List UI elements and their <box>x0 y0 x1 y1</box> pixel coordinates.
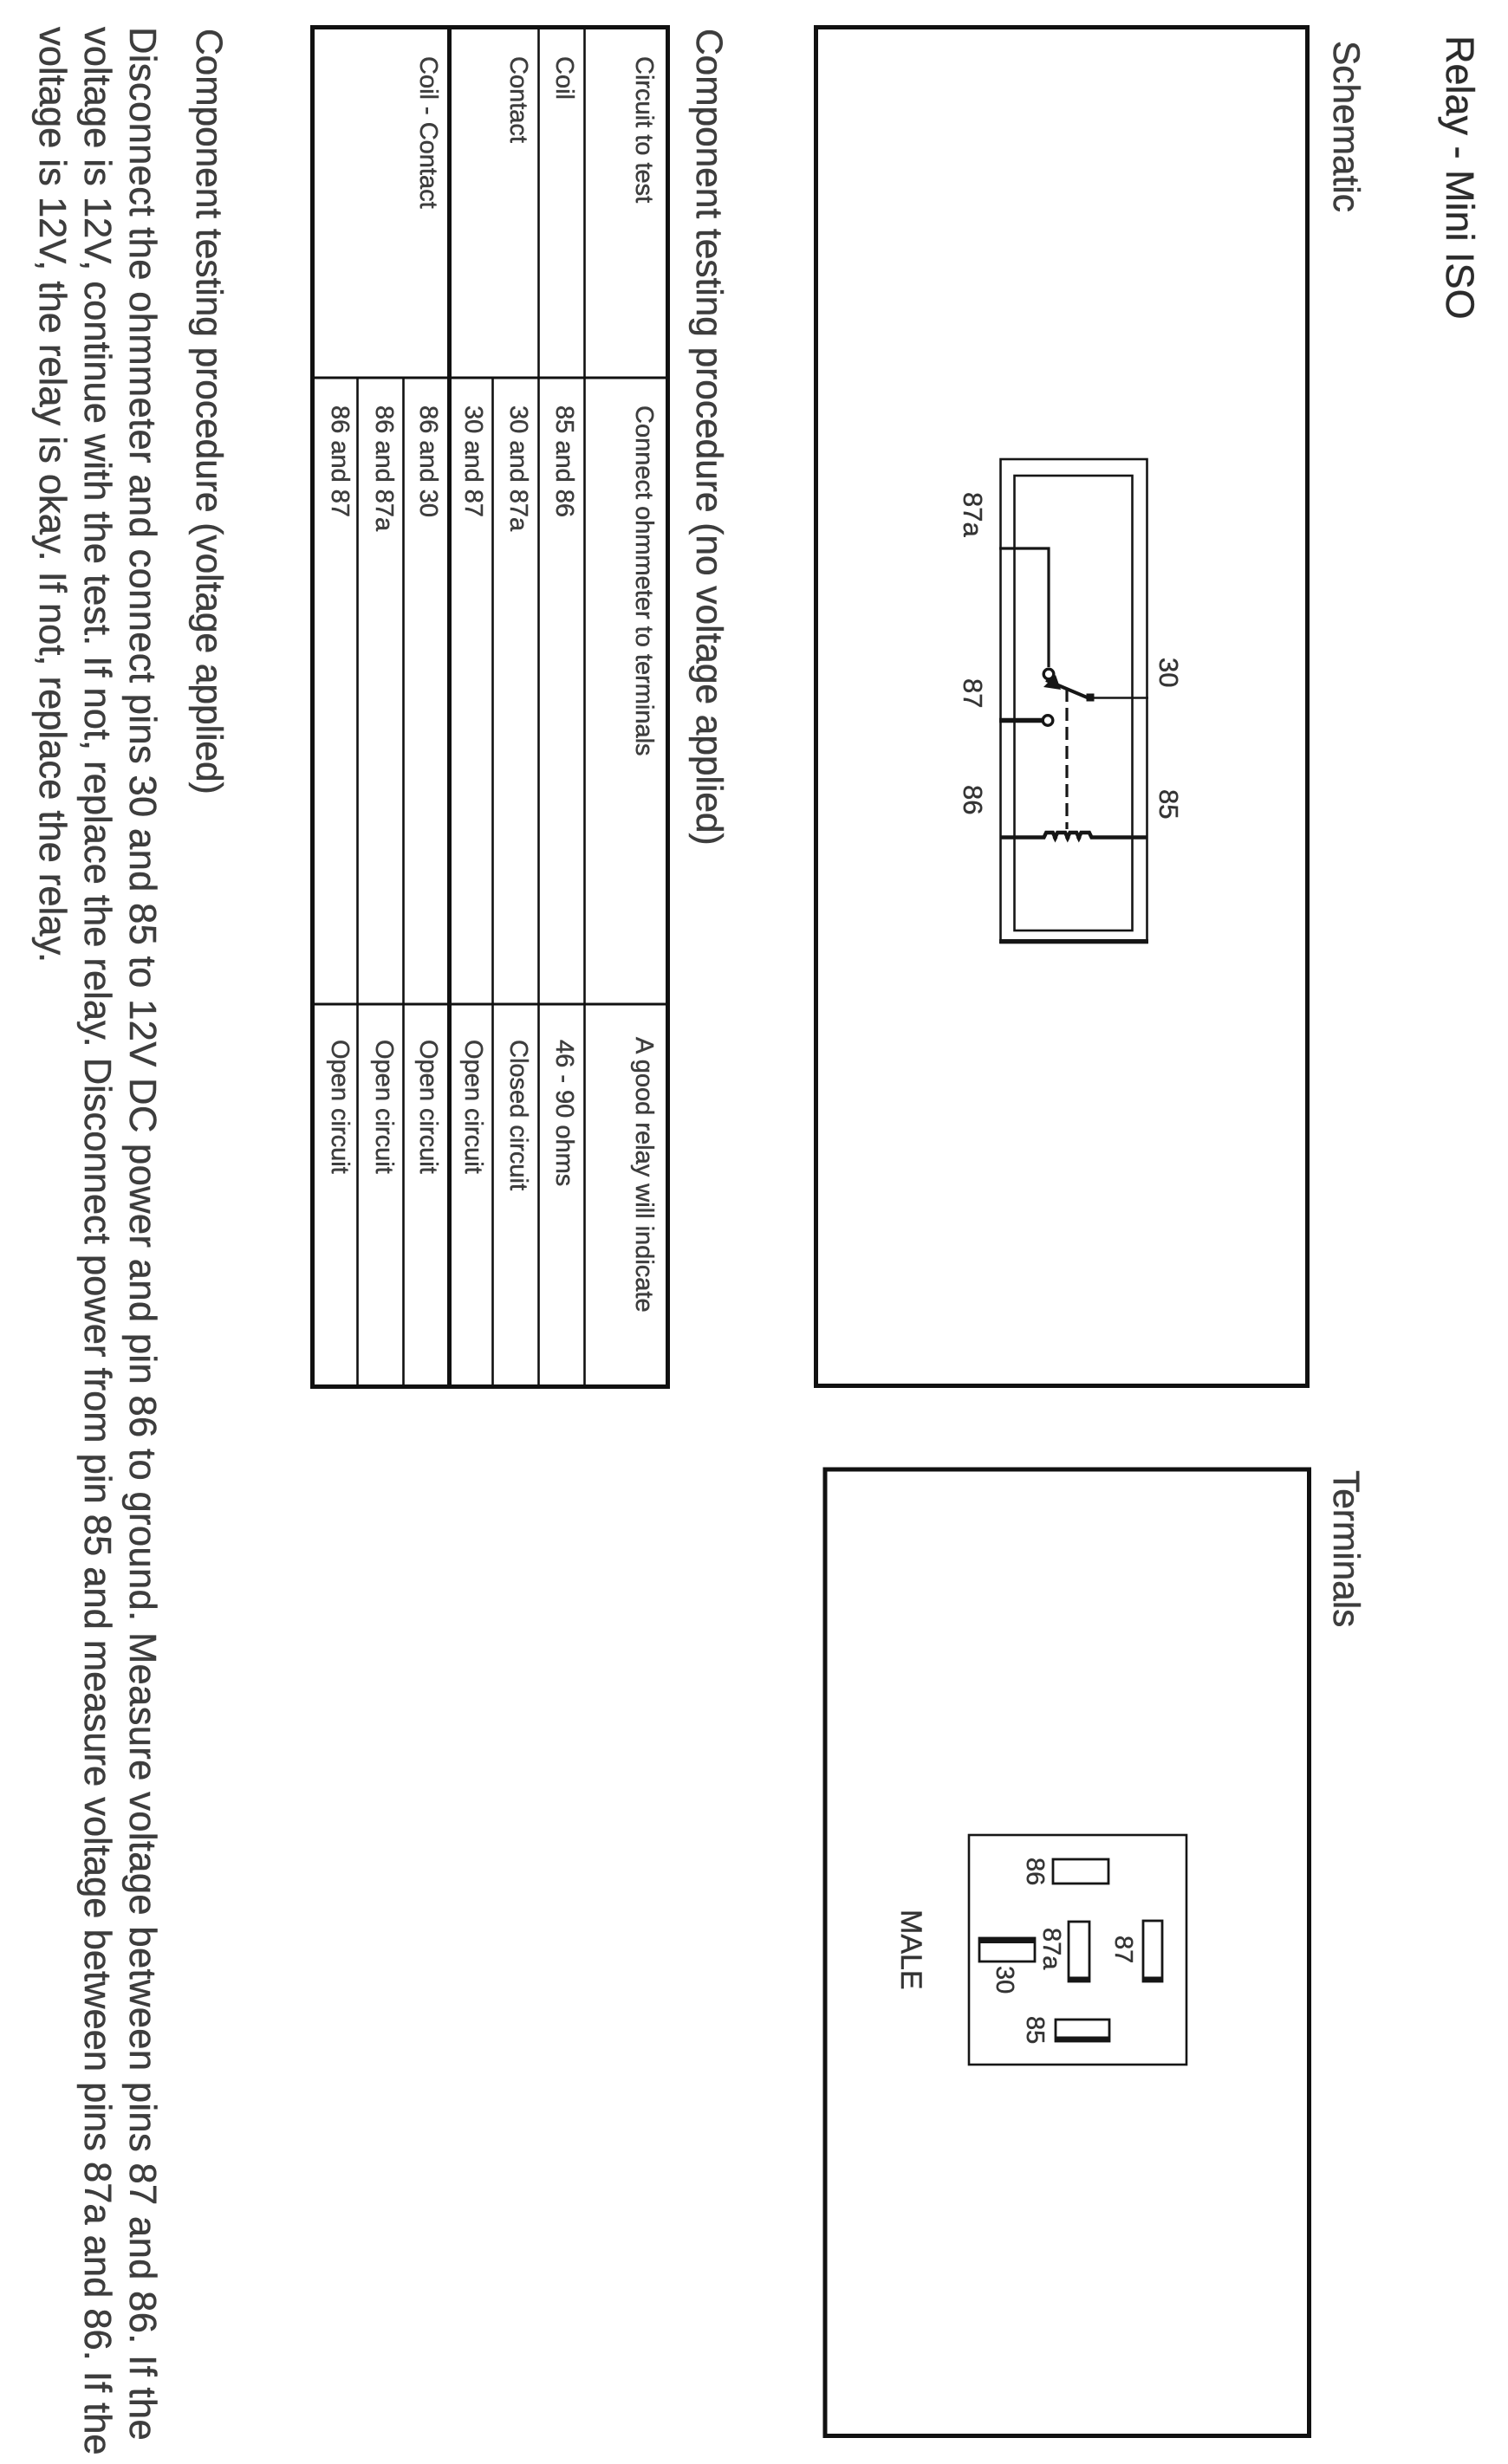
svg-text:87: 87 <box>1109 1936 1137 1963</box>
svg-text:A good relay will indicate: A good relay will indicate <box>630 1037 658 1313</box>
svg-text:86 and 87: 86 and 87 <box>326 405 354 517</box>
svg-text:Relay - Mini ISO: Relay - Mini ISO <box>1438 36 1482 320</box>
svg-text:Open circuit: Open circuit <box>370 1040 398 1174</box>
svg-text:Component testing procedure (v: Component testing procedure (voltage app… <box>189 29 230 794</box>
svg-text:Connect ohmmeter to terminals: Connect ohmmeter to terminals <box>630 405 658 756</box>
svg-text:Schematic: Schematic <box>1326 41 1367 212</box>
svg-text:Open circuit: Open circuit <box>326 1040 354 1174</box>
svg-text:85 and 86: 85 and 86 <box>550 405 578 517</box>
svg-text:Coil: Coil <box>550 56 578 100</box>
svg-text:Contact: Contact <box>504 56 532 143</box>
svg-text:voltage is 12V, the relay is o: voltage is 12V, the relay is okay. If no… <box>31 27 73 963</box>
svg-text:46 - 90 ohms: 46 - 90 ohms <box>550 1040 578 1186</box>
svg-text:Coil - Contact: Coil - Contact <box>414 56 442 209</box>
svg-text:voltage is 12V, continue with: voltage is 12V, continue with the test. … <box>76 27 118 2455</box>
svg-text:Open circuit: Open circuit <box>459 1040 487 1174</box>
svg-text:87: 87 <box>958 678 988 708</box>
svg-text:85: 85 <box>1154 789 1184 819</box>
svg-text:Open circuit: Open circuit <box>414 1040 442 1174</box>
svg-text:Circuit to test: Circuit to test <box>630 56 658 203</box>
svg-text:30: 30 <box>991 1966 1018 1994</box>
svg-text:Disconnect the ohmmeter and co: Disconnect the ohmmeter and connect pins… <box>121 27 163 2441</box>
svg-text:Closed circuit: Closed circuit <box>504 1040 532 1190</box>
svg-text:86: 86 <box>958 785 988 814</box>
svg-text:86: 86 <box>1021 1858 1049 1885</box>
svg-text:86 and 87a: 86 and 87a <box>370 405 398 532</box>
svg-text:Terminals: Terminals <box>1326 1470 1367 1627</box>
svg-text:30 and 87a: 30 and 87a <box>504 405 532 532</box>
svg-text:30 and 87: 30 and 87 <box>459 405 487 517</box>
svg-text:87a: 87a <box>958 492 988 537</box>
svg-text:86 and 30: 86 and 30 <box>414 405 442 517</box>
svg-text:85: 85 <box>1021 2016 1049 2044</box>
svg-text:30: 30 <box>1154 658 1184 687</box>
svg-text:87a: 87a <box>1037 1928 1065 1970</box>
svg-text:MALE: MALE <box>894 1910 927 1990</box>
svg-text:Component testing procedure (n: Component testing procedure (no voltage … <box>689 29 730 846</box>
